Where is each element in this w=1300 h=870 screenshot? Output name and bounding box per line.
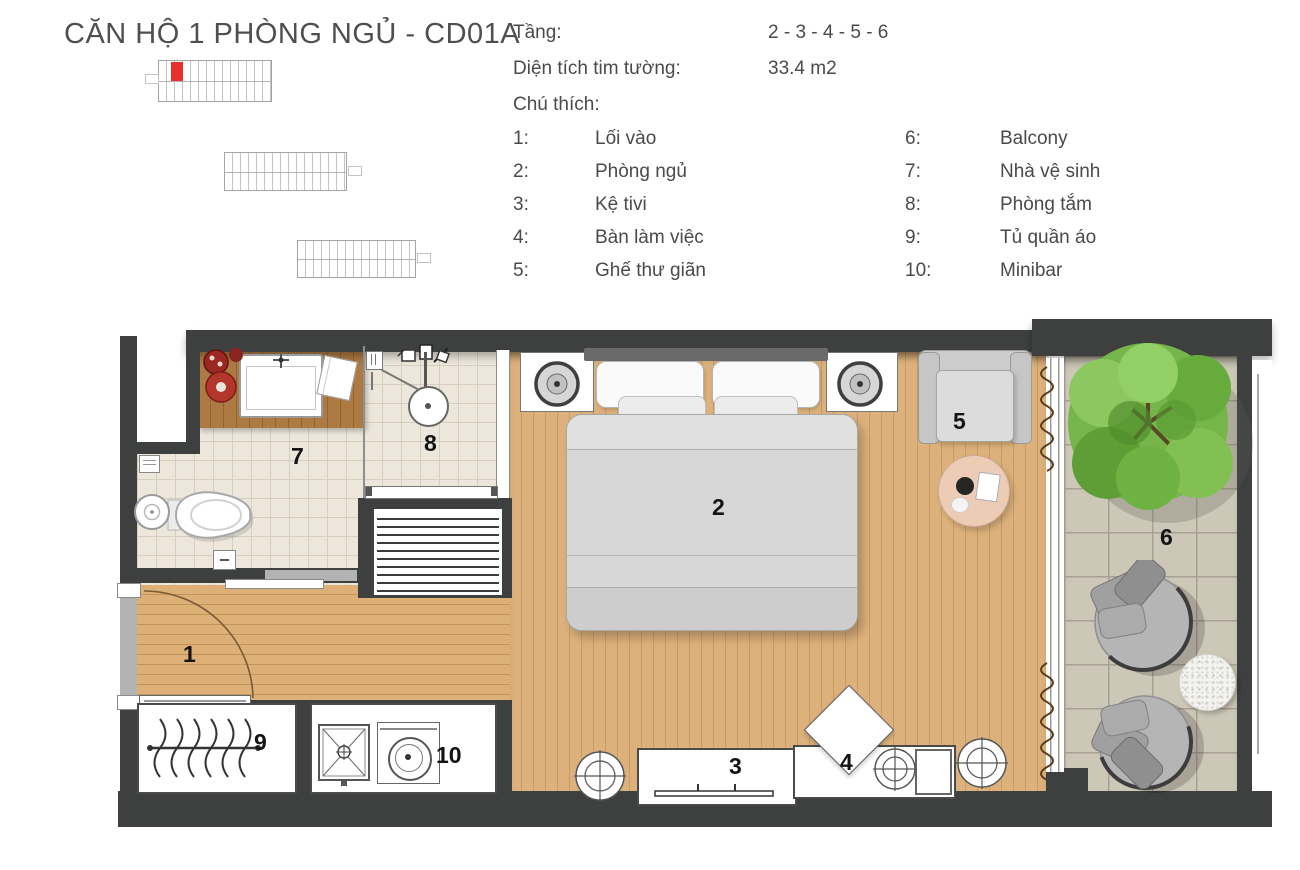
keyplan-annotation-1 <box>145 74 159 84</box>
appliance-top-line <box>380 728 437 730</box>
legend-num-2: 2: <box>513 161 529 183</box>
downlight-icon <box>956 737 1008 789</box>
bed-headboard <box>584 348 828 361</box>
plan-label-relax-chair: 5 <box>953 408 966 435</box>
legend-label-wardrobe: Tủ quần áo <box>1000 227 1096 249</box>
balcony-rug <box>1179 654 1236 711</box>
legend-num-8: 8: <box>905 194 921 216</box>
sink-basin <box>246 366 316 410</box>
keyplan-block3-midline <box>298 259 415 260</box>
page-title: CĂN HỘ 1 PHÒNG NGỦ - CD01A <box>64 18 520 51</box>
toilet <box>130 478 256 546</box>
minibar-sink-icon <box>318 724 372 786</box>
tp-line <box>143 460 156 461</box>
legend-num-4: 4: <box>513 227 529 249</box>
plan-label-wardrobe: 9 <box>254 729 267 756</box>
mixer-leader-line <box>371 372 373 390</box>
keyplan-block1-midline <box>159 81 271 82</box>
keyplan-block2-midline <box>225 172 346 173</box>
plan-label-tv-shelf: 3 <box>729 753 742 780</box>
burner-ring <box>388 737 432 781</box>
plan-label-entry: 1 <box>183 641 196 668</box>
bedside-lamp-right <box>836 360 884 408</box>
shower-mixer-box <box>366 351 383 370</box>
legend-num-3: 3: <box>513 194 529 216</box>
plan-label-bathroom: 8 <box>424 430 437 457</box>
legend-num-5: 5: <box>513 260 529 282</box>
area-label: Diện tích tim tường: <box>513 58 681 80</box>
minibar-appliance <box>377 722 440 784</box>
legend-title: Chú thích: <box>513 94 600 116</box>
legend-label-tv: Kệ tivi <box>595 194 647 216</box>
floor-drain <box>213 550 236 570</box>
keyplan-highlighted-unit <box>171 62 183 81</box>
floor-value: 2 - 3 - 4 - 5 - 6 <box>768 22 888 44</box>
duvet-seam <box>567 555 857 556</box>
bed-duvet <box>566 414 858 631</box>
curtain-squiggle-top <box>1034 364 1058 476</box>
duvet-fold <box>567 415 857 450</box>
louver-panel <box>374 509 502 595</box>
door-swing-arc <box>139 588 254 700</box>
duvet-foot-band <box>567 587 857 630</box>
keyplan-block-1 <box>158 60 272 102</box>
legend-num-1: 1: <box>513 128 529 150</box>
mixer-line <box>371 354 372 365</box>
drain-mark <box>220 559 229 561</box>
wall-left-lower <box>120 705 137 795</box>
floorplan-page: CĂN HỘ 1 PHÒNG NGỦ - CD01A Tầng: 2 - 3 -… <box>0 0 1300 870</box>
plan-label-wc: 7 <box>291 443 304 470</box>
plan-label-balcony: 6 <box>1160 524 1173 551</box>
plan-label-desk: 4 <box>840 749 853 776</box>
burner-dot <box>405 754 411 760</box>
bedside-lamp-left <box>533 360 581 408</box>
legend-label-desk: Bàn làm việc <box>595 227 704 249</box>
floor-label: Tầng: <box>513 22 562 44</box>
area-value: 33.4 m2 <box>768 58 837 80</box>
wall-void-horizontal <box>137 442 200 454</box>
legend-num-10: 10: <box>905 260 931 282</box>
wall-left-upper <box>120 336 137 585</box>
balcony-tree <box>1048 328 1260 536</box>
legend-label-chair: Ghế thư giãn <box>595 260 706 282</box>
table-cup <box>956 477 974 495</box>
toilet-paper-holder <box>139 455 160 473</box>
keyplan-annotation-3 <box>417 253 431 263</box>
keyplan-block-2 <box>224 152 347 191</box>
legend-num-7: 7: <box>905 161 921 183</box>
legend-label-minibar: Minibar <box>1000 260 1062 282</box>
entry-opening <box>120 595 137 697</box>
table-card <box>975 472 1001 503</box>
plan-label-bedroom: 2 <box>712 494 725 521</box>
legend-num-6: 6: <box>905 128 921 150</box>
vanity-tray-decor <box>196 344 254 404</box>
desk-lamp-icon <box>873 747 917 791</box>
glass-end-cap <box>366 487 372 496</box>
shower-head-dot <box>425 403 431 409</box>
mixer-line <box>375 354 376 365</box>
legend-num-9: 9: <box>905 227 921 249</box>
keyplan-block-3 <box>297 240 416 278</box>
hangers-icon <box>146 712 266 784</box>
table-flower <box>951 497 969 513</box>
tv-icon <box>653 782 777 800</box>
legend-label-bath: Phòng tắm <box>1000 194 1092 216</box>
shower-head <box>408 386 449 427</box>
plan-label-minibar: 10 <box>436 742 462 769</box>
legend-label-entry: Lối vào <box>595 128 656 150</box>
desk-laptop <box>915 749 952 795</box>
side-table <box>938 455 1010 527</box>
door-leaf-line <box>144 700 246 702</box>
legend-label-wc: Nhà vệ sinh <box>1000 161 1100 183</box>
void-shaft <box>137 334 187 444</box>
door-jamb-top <box>117 583 141 598</box>
legend-label-bedroom: Phòng ngủ <box>595 161 687 183</box>
legend-label-balcony: Balcony <box>1000 128 1068 150</box>
shower-glass-front <box>365 486 498 499</box>
curtain-squiggle-bottom <box>1034 660 1058 790</box>
towel-fold-line <box>322 357 331 394</box>
downlight-icon <box>574 750 626 802</box>
sink-faucet-icon <box>271 354 291 370</box>
armchair-seat <box>936 370 1014 442</box>
shower-glass-side <box>496 350 510 498</box>
glass-end-cap <box>491 487 497 496</box>
keyplan-annotation-2 <box>348 166 362 176</box>
tp-line <box>143 464 156 465</box>
